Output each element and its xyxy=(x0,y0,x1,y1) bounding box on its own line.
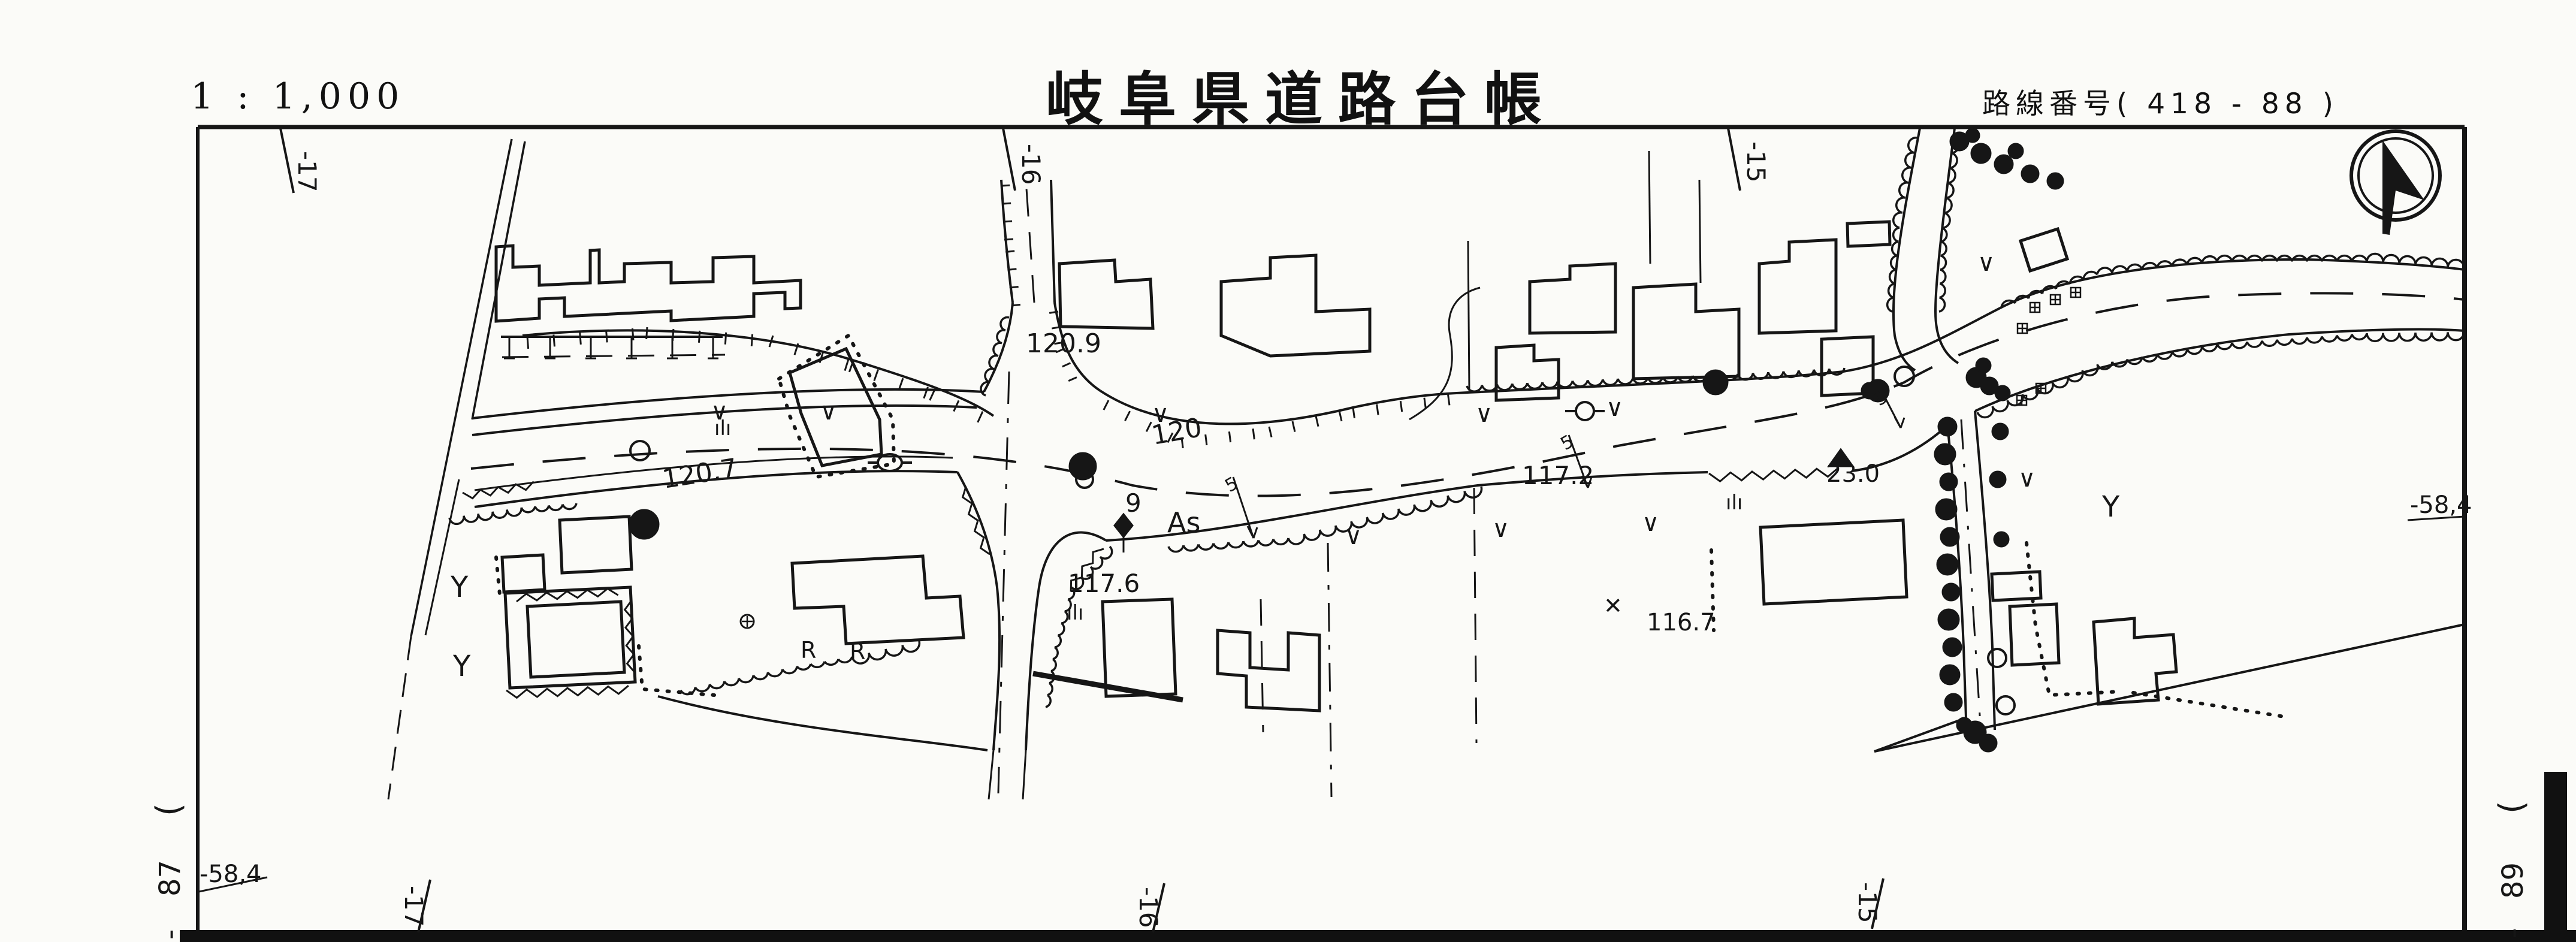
map-label: 23.0 xyxy=(1826,460,1880,488)
map-label: Y xyxy=(450,570,469,604)
grid-label-bottom-16: -16 xyxy=(1134,887,1163,928)
map-label: 117.2 xyxy=(1522,461,1594,490)
map-label: 116.7 xyxy=(1647,609,1716,636)
map-label: ✕ xyxy=(1603,593,1623,619)
map-frame xyxy=(198,127,2465,932)
map-label: ∨ xyxy=(1345,523,1362,550)
map-label: 9 xyxy=(1125,488,1141,518)
sheet-refs: ( 87 - ( 89 - xyxy=(149,801,2531,940)
map-label: As xyxy=(1167,506,1200,539)
road-register-sheet: 1 : 1,000 岐阜県道路台帳 路線番号( 418 - 88 ) -17 -… xyxy=(0,0,2576,942)
grid-tick-labels: -17 -16 -15 -17 -16 -15 -58,4 -58,4 xyxy=(200,141,2472,928)
sheet-ref-right-number: 89 xyxy=(2496,862,2530,899)
map-label: R xyxy=(801,637,816,663)
map-label: 117.6 xyxy=(1068,569,1140,598)
elevation-label-right: -58,4 xyxy=(2410,491,2472,519)
map-label: ılı xyxy=(1726,491,1743,515)
map-label: ∨ xyxy=(1977,249,1995,277)
map-canvas: -17 -16 -15 -17 -16 -15 -58,4 -58,4 ( 87… xyxy=(0,0,2576,942)
map-labels: 120.9120120.7117.223.09As117.6116.7RRYYY… xyxy=(450,249,2120,683)
grid-label-top-16: -16 xyxy=(1016,144,1046,185)
grid-label-bottom-15: -15 xyxy=(1853,882,1882,923)
grid-label-top-15: -15 xyxy=(1741,141,1771,183)
map-label: ∨ xyxy=(711,398,728,425)
sheet-ref-left-dash: - xyxy=(153,929,187,940)
map-label: Y xyxy=(2101,490,2120,524)
map-label: 120.9 xyxy=(1026,328,1101,359)
grid-tick-lines xyxy=(199,128,2465,932)
map-label: 120.7 xyxy=(660,453,739,495)
sheet-ref-left-number: 87 xyxy=(153,860,187,896)
north-compass-icon xyxy=(2351,131,2440,235)
sheet-ref-right-dash: - xyxy=(2496,928,2530,938)
map-label: ∨ xyxy=(1606,394,1623,422)
map-label: R xyxy=(850,638,865,665)
scan-bottom-band xyxy=(180,930,2576,942)
map-label: ılı xyxy=(1067,601,1083,625)
map-label: ∨ xyxy=(1492,515,1509,543)
map-label: Y xyxy=(452,650,471,683)
map-label: ∨ xyxy=(1642,509,1659,537)
sheet-ref-left-paren: ( xyxy=(149,803,188,816)
map-label: ∨ xyxy=(1475,400,1493,428)
grid-label-bottom-17: -17 xyxy=(399,886,428,927)
map-label: ∨ xyxy=(2018,465,2036,493)
map-label: ∨ xyxy=(1152,400,1169,428)
map-label: ∨ xyxy=(820,398,837,425)
elevation-label-left: -58,4 xyxy=(200,861,262,888)
scan-right-band xyxy=(2544,772,2567,942)
sheet-ref-right-paren: ( xyxy=(2492,801,2531,814)
grid-label-top-17: -17 xyxy=(292,151,322,192)
